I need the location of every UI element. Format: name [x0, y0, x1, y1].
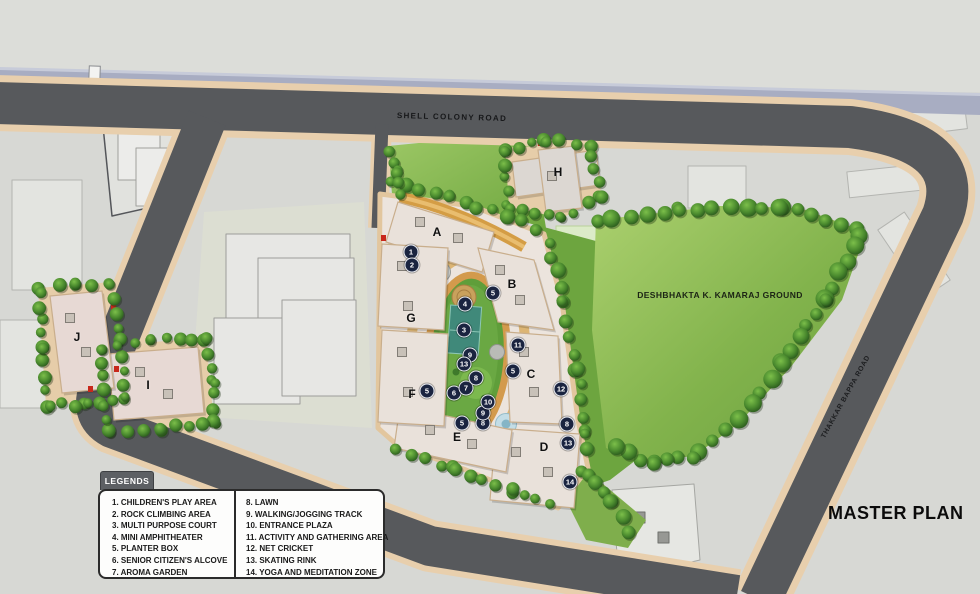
- building-label-B: B: [508, 277, 517, 291]
- legend-item: 9. WALKING/JOGGING TRACK: [246, 509, 383, 521]
- kamaraj-ground-label: DESHBHAKTA K. KAMARAJ GROUND: [637, 290, 803, 300]
- amenity-marker-13: 13: [561, 436, 576, 451]
- building-label-C: C: [527, 367, 536, 381]
- amenity-marker-8: 8: [560, 417, 575, 432]
- legend-item: 5. PLANTER BOX: [112, 543, 234, 555]
- building-label-E: E: [453, 430, 461, 444]
- legend-item: 11. ACTIVITY AND GATHERING AREA: [246, 532, 383, 544]
- legend-item: 14. YOGA AND MEDITATION ZONE: [246, 567, 383, 579]
- legend-item: 2. ROCK CLIMBING AREA: [112, 509, 234, 521]
- amenity-marker-3: 3: [457, 323, 472, 338]
- legend-item: 12. NET CRICKET: [246, 543, 383, 555]
- building-label-G: G: [406, 311, 415, 325]
- amenity-marker-10: 10: [481, 395, 496, 410]
- legend-item: 13. SKATING RINK: [246, 555, 383, 567]
- amenity-marker-5: 5: [506, 364, 521, 379]
- building-label-H: H: [554, 165, 563, 179]
- legend-item: 10. ENTRANCE PLAZA: [246, 520, 383, 532]
- amenity-marker-13: 13: [457, 357, 472, 372]
- amenity-marker-5: 5: [486, 286, 501, 301]
- legend-item: 7. AROMA GARDEN: [112, 567, 234, 579]
- building-label-D: D: [540, 440, 549, 454]
- legend-box: 1. CHILDREN'S PLAY AREA2. ROCK CLIMBING …: [98, 489, 385, 579]
- master-plan-canvas: SHELL COLONY ROAD THAKKAR BAPPA ROAD DES…: [0, 0, 980, 594]
- legend-item: 6. SENIOR CITIZEN'S ALCOVE: [112, 555, 234, 567]
- building-label-J: J: [74, 330, 81, 344]
- building-label-I: I: [146, 378, 149, 392]
- page-title: MASTER PLAN: [828, 503, 964, 524]
- amenity-marker-4: 4: [458, 297, 473, 312]
- amenity-marker-2: 2: [405, 258, 420, 273]
- legend-column-2: 8. LAWN9. WALKING/JOGGING TRACK10. ENTRA…: [234, 491, 383, 577]
- building-label-A: A: [433, 225, 442, 239]
- legend-item: 8. LAWN: [246, 497, 383, 509]
- amenity-marker-11: 11: [511, 338, 526, 353]
- building-label-F: F: [408, 387, 415, 401]
- legend-item: 1. CHILDREN'S PLAY AREA: [112, 497, 234, 509]
- amenity-marker-14: 14: [563, 475, 578, 490]
- legend-column-1: 1. CHILDREN'S PLAY AREA2. ROCK CLIMBING …: [100, 491, 234, 577]
- legend-tab: LEGENDS: [100, 471, 154, 490]
- amenity-marker-12: 12: [554, 382, 569, 397]
- amenity-marker-5: 5: [455, 416, 470, 431]
- legend-item: 3. MULTI PURPOSE COURT: [112, 520, 234, 532]
- amenity-marker-8: 8: [469, 371, 484, 386]
- legend-item: 4. MINI AMPHITHEATER: [112, 532, 234, 544]
- amenity-marker-5: 5: [420, 384, 435, 399]
